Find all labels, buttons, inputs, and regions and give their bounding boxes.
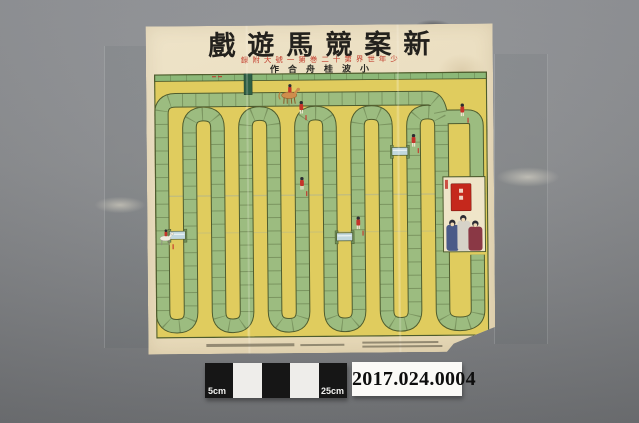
acrylic-weight-right: [494, 54, 548, 344]
goal-illustration-box: [443, 177, 486, 252]
sugoroku-game-poster: 戲遊馬競案新 録附大號一第巻二十第界世年少 作合舟桂波小: [146, 23, 496, 354]
photo-scale-bar: 5cm 25cm: [205, 363, 347, 398]
goal-label-mark: [445, 180, 448, 189]
game-board: [154, 72, 489, 339]
colophon-print-line: [300, 344, 344, 346]
acrylic-weight-left: [104, 46, 151, 348]
scale-label-25cm: 25cm: [321, 386, 344, 396]
photograph: 戲遊馬競案新 録附大號一第巻二十第界世年少 作合舟桂波小: [0, 0, 639, 423]
scale-segment-black: 5cm: [205, 363, 233, 398]
scale-segment-white: [290, 363, 318, 398]
scale-segment-black: 25cm: [319, 363, 347, 398]
scale-label-5cm: 5cm: [208, 386, 226, 396]
scale-segment-black: [262, 363, 290, 398]
colophon-print-line: [362, 344, 442, 347]
colophon-print-line: [362, 340, 438, 343]
catalog-number-label: 2017.024.0004: [352, 362, 462, 396]
scale-segment-white: [233, 363, 261, 398]
colophon-print-line: [206, 343, 294, 346]
